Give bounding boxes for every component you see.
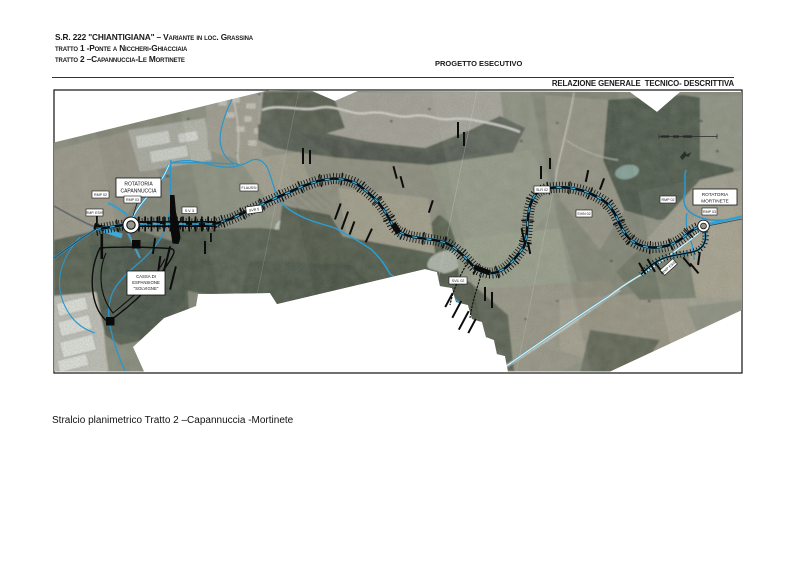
svg-text:ROTATORIA: ROTATORIA (702, 192, 729, 197)
svg-text:CASSA DI: CASSA DI (136, 274, 156, 279)
svg-text:MORTINETE: MORTINETE (701, 199, 729, 204)
svg-text:"SOLVIGNE": "SOLVIGNE" (134, 286, 159, 291)
svg-text:S.V. 5: S.V. 5 (185, 209, 194, 213)
svg-text:ESPANSIONE: ESPANSIONE (132, 280, 160, 285)
svg-text:RMP 02: RMP 02 (94, 193, 107, 197)
svg-text:CAPANNUCCIA: CAPANNUCCIA (120, 189, 157, 195)
svg-text:SVIN 02: SVIN 02 (577, 212, 590, 216)
svg-text:SLR 02: SLR 02 (536, 188, 548, 192)
svg-text:FLAUSSI: FLAUSSI (242, 186, 257, 190)
svg-text:RMP. ESIS: RMP. ESIS (86, 211, 104, 215)
svg-text:RMP 03: RMP 03 (703, 210, 716, 214)
svg-text:SVIL 02: SVIL 02 (452, 279, 465, 283)
svg-text:RMP 02: RMP 02 (662, 198, 675, 202)
svg-text:RMP 03: RMP 03 (126, 198, 139, 202)
svg-text:ROTATORIA: ROTATORIA (124, 182, 153, 188)
